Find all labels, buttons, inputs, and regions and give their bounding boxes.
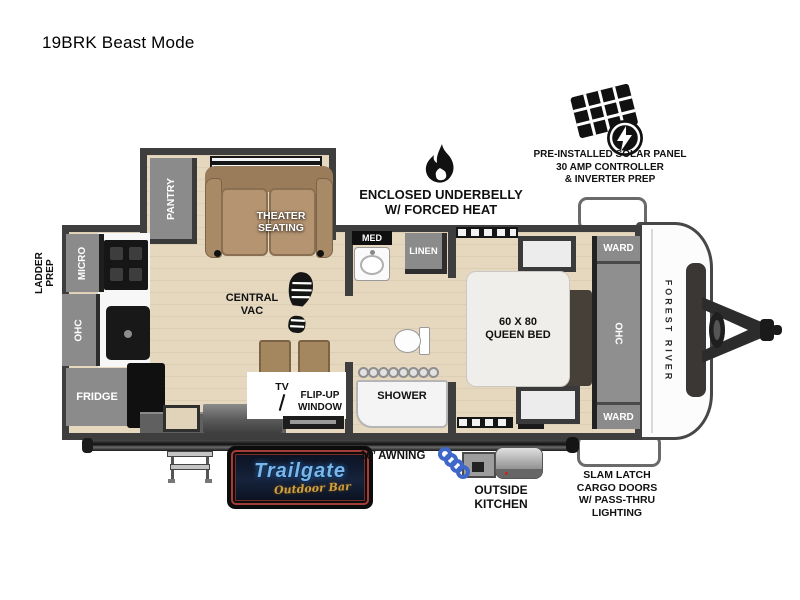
bedroom-ohc-cabinet: OHC (597, 264, 640, 402)
front-cap-seam (651, 229, 653, 433)
trailgate-logo: Trailgate Outdoor Bar (227, 446, 373, 509)
hose-icon (436, 447, 470, 479)
stove-top (104, 240, 148, 290)
bed-type-label: QUEEN BED (485, 329, 550, 342)
shower-stall (356, 380, 448, 428)
pantry-label: PANTRY (165, 178, 177, 220)
outside-kitchen-label: OUTSIDE KITCHEN (460, 483, 542, 511)
underbelly-line-2: W/ FORCED HEAT (349, 202, 533, 217)
bathroom-sink (354, 247, 390, 281)
microwave-cabinet: MICRO (66, 234, 104, 292)
bathroom-wall (448, 382, 456, 434)
griddle-knob (505, 472, 508, 475)
wardrobe-bottom: WARD (597, 402, 640, 429)
outside-faucet (472, 462, 484, 472)
burner (129, 247, 142, 260)
nightstand (516, 386, 580, 424)
bathroom-wall (448, 230, 456, 278)
theater-seating-label: THEATER SEATING (243, 210, 319, 235)
kitchen-ohc-cabinet: OHC (62, 294, 100, 366)
bed-size-label: 60 X 80 (499, 316, 537, 329)
burner (110, 268, 123, 281)
kitchen-sink (106, 306, 150, 360)
burner (129, 268, 142, 281)
tv-label: TV (270, 381, 294, 393)
hitch-icon (702, 287, 782, 373)
flip-up-window-label: FLIP-UP WINDOW (292, 390, 348, 414)
logo-subtitle: Outdoor Bar (274, 479, 351, 496)
ottoman (259, 340, 291, 375)
solar-callout-label: PRE-INSTALLED SOLAR PANEL 30 AMP CONTROL… (524, 149, 696, 187)
linen-cabinet: LINEN (405, 233, 447, 274)
window-glass (290, 420, 336, 424)
fridge-cabinet: FRIDGE (66, 368, 128, 426)
model-title: 19BRK Beast Mode (42, 33, 195, 53)
shower-door (359, 366, 447, 380)
flip-up-window (283, 416, 344, 429)
cupholder (317, 250, 324, 257)
flame-icon (423, 144, 457, 186)
griddle (495, 447, 543, 479)
brand-label: FOREST RIVER (659, 225, 677, 437)
queen-bed: 60 X 80 QUEEN BED (466, 271, 570, 387)
bedroom-window (457, 417, 513, 428)
floorplan-page: 19BRK Beast Mode PRE-INSTALLED SOLAR PAN… (0, 0, 800, 600)
ottoman (298, 340, 330, 375)
sink-faucet (124, 330, 132, 338)
shower-label: SHOWER (360, 390, 444, 403)
medicine-cabinet: MED (352, 231, 392, 245)
toilet (394, 329, 421, 353)
underbelly-line-1: ENCLOSED UNDERBELLY (349, 187, 533, 202)
pantry-cabinet: PANTRY (150, 158, 197, 244)
awning-label: 16’ AWNING (360, 450, 440, 464)
bedroom-window (456, 227, 518, 238)
entry-steps (167, 451, 213, 483)
logo-title: Trailgate (254, 461, 346, 481)
burner (110, 247, 123, 260)
solar-line-1: PRE-INSTALLED SOLAR PANEL (524, 149, 696, 162)
wardrobe-top: WARD (597, 236, 640, 264)
solar-line-3: & INVERTER PREP (524, 174, 696, 187)
wardrobe-bank: WARD OHC WARD (592, 236, 640, 429)
sink-basin (360, 255, 384, 275)
awning-end-cap (82, 438, 93, 453)
cargo-doors-label: SLAM LATCH CARGO DOORS W/ PASS-THRU LIGH… (561, 469, 673, 519)
solar-line-2: 30 AMP CONTROLLER (524, 162, 696, 175)
sofa-arm-left (205, 178, 222, 258)
cupholder (214, 250, 221, 257)
entry-door (163, 405, 200, 432)
awning-end-cap (566, 437, 579, 453)
nightstand (518, 236, 576, 272)
central-vac-label: CENTRAL VAC (220, 292, 284, 318)
underbelly-callout-label: ENCLOSED UNDERBELLY W/ FORCED HEAT (349, 187, 533, 217)
logo-frame: Trailgate Outdoor Bar (231, 450, 369, 505)
